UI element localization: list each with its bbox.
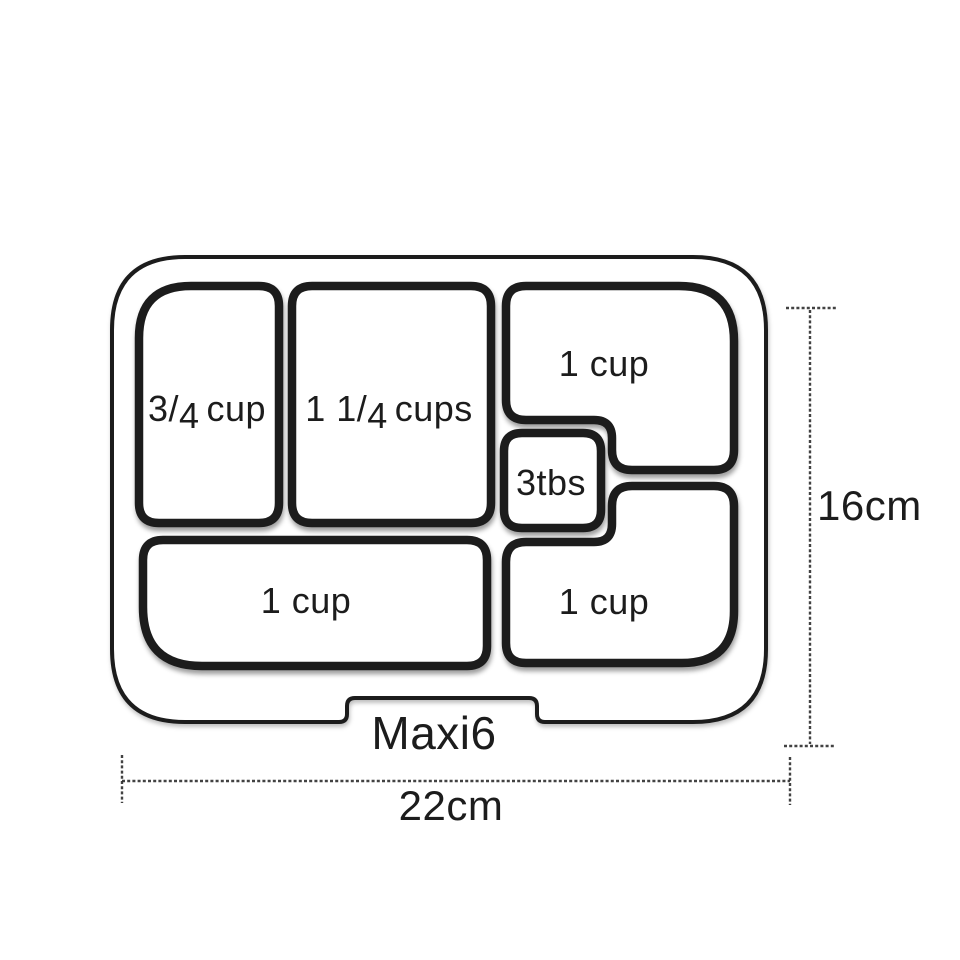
compartment-top-right-label: 1 cup xyxy=(559,343,650,384)
compartment-bottom-right-label: 1 cup xyxy=(559,581,650,622)
capacity-unit: cups xyxy=(395,388,473,429)
diagram-canvas: 3/4cup 1 1/4cups 1 cup 3tbs 1 cup 1 cup … xyxy=(0,0,960,960)
capacity-whole: 1 1/ xyxy=(305,388,367,429)
height-dimension-label: 16cm xyxy=(817,482,922,529)
compartment-top-left-label: 3/4cup xyxy=(148,388,266,436)
capacity-fraction-denominator: 4 xyxy=(179,395,200,436)
compartment-bottom-left-label: 1 cup xyxy=(261,580,352,621)
width-dimension-label: 22cm xyxy=(399,782,504,829)
capacity-whole: 3/ xyxy=(148,388,179,429)
product-name-label: Maxi6 xyxy=(371,707,496,759)
capacity-unit: cup xyxy=(207,388,267,429)
maxi6-tray-diagram: 3/4cup 1 1/4cups 1 cup 3tbs 1 cup 1 cup … xyxy=(0,0,960,960)
compartment-middle-small-label: 3tbs xyxy=(516,462,586,503)
capacity-fraction-denominator: 4 xyxy=(367,395,388,436)
